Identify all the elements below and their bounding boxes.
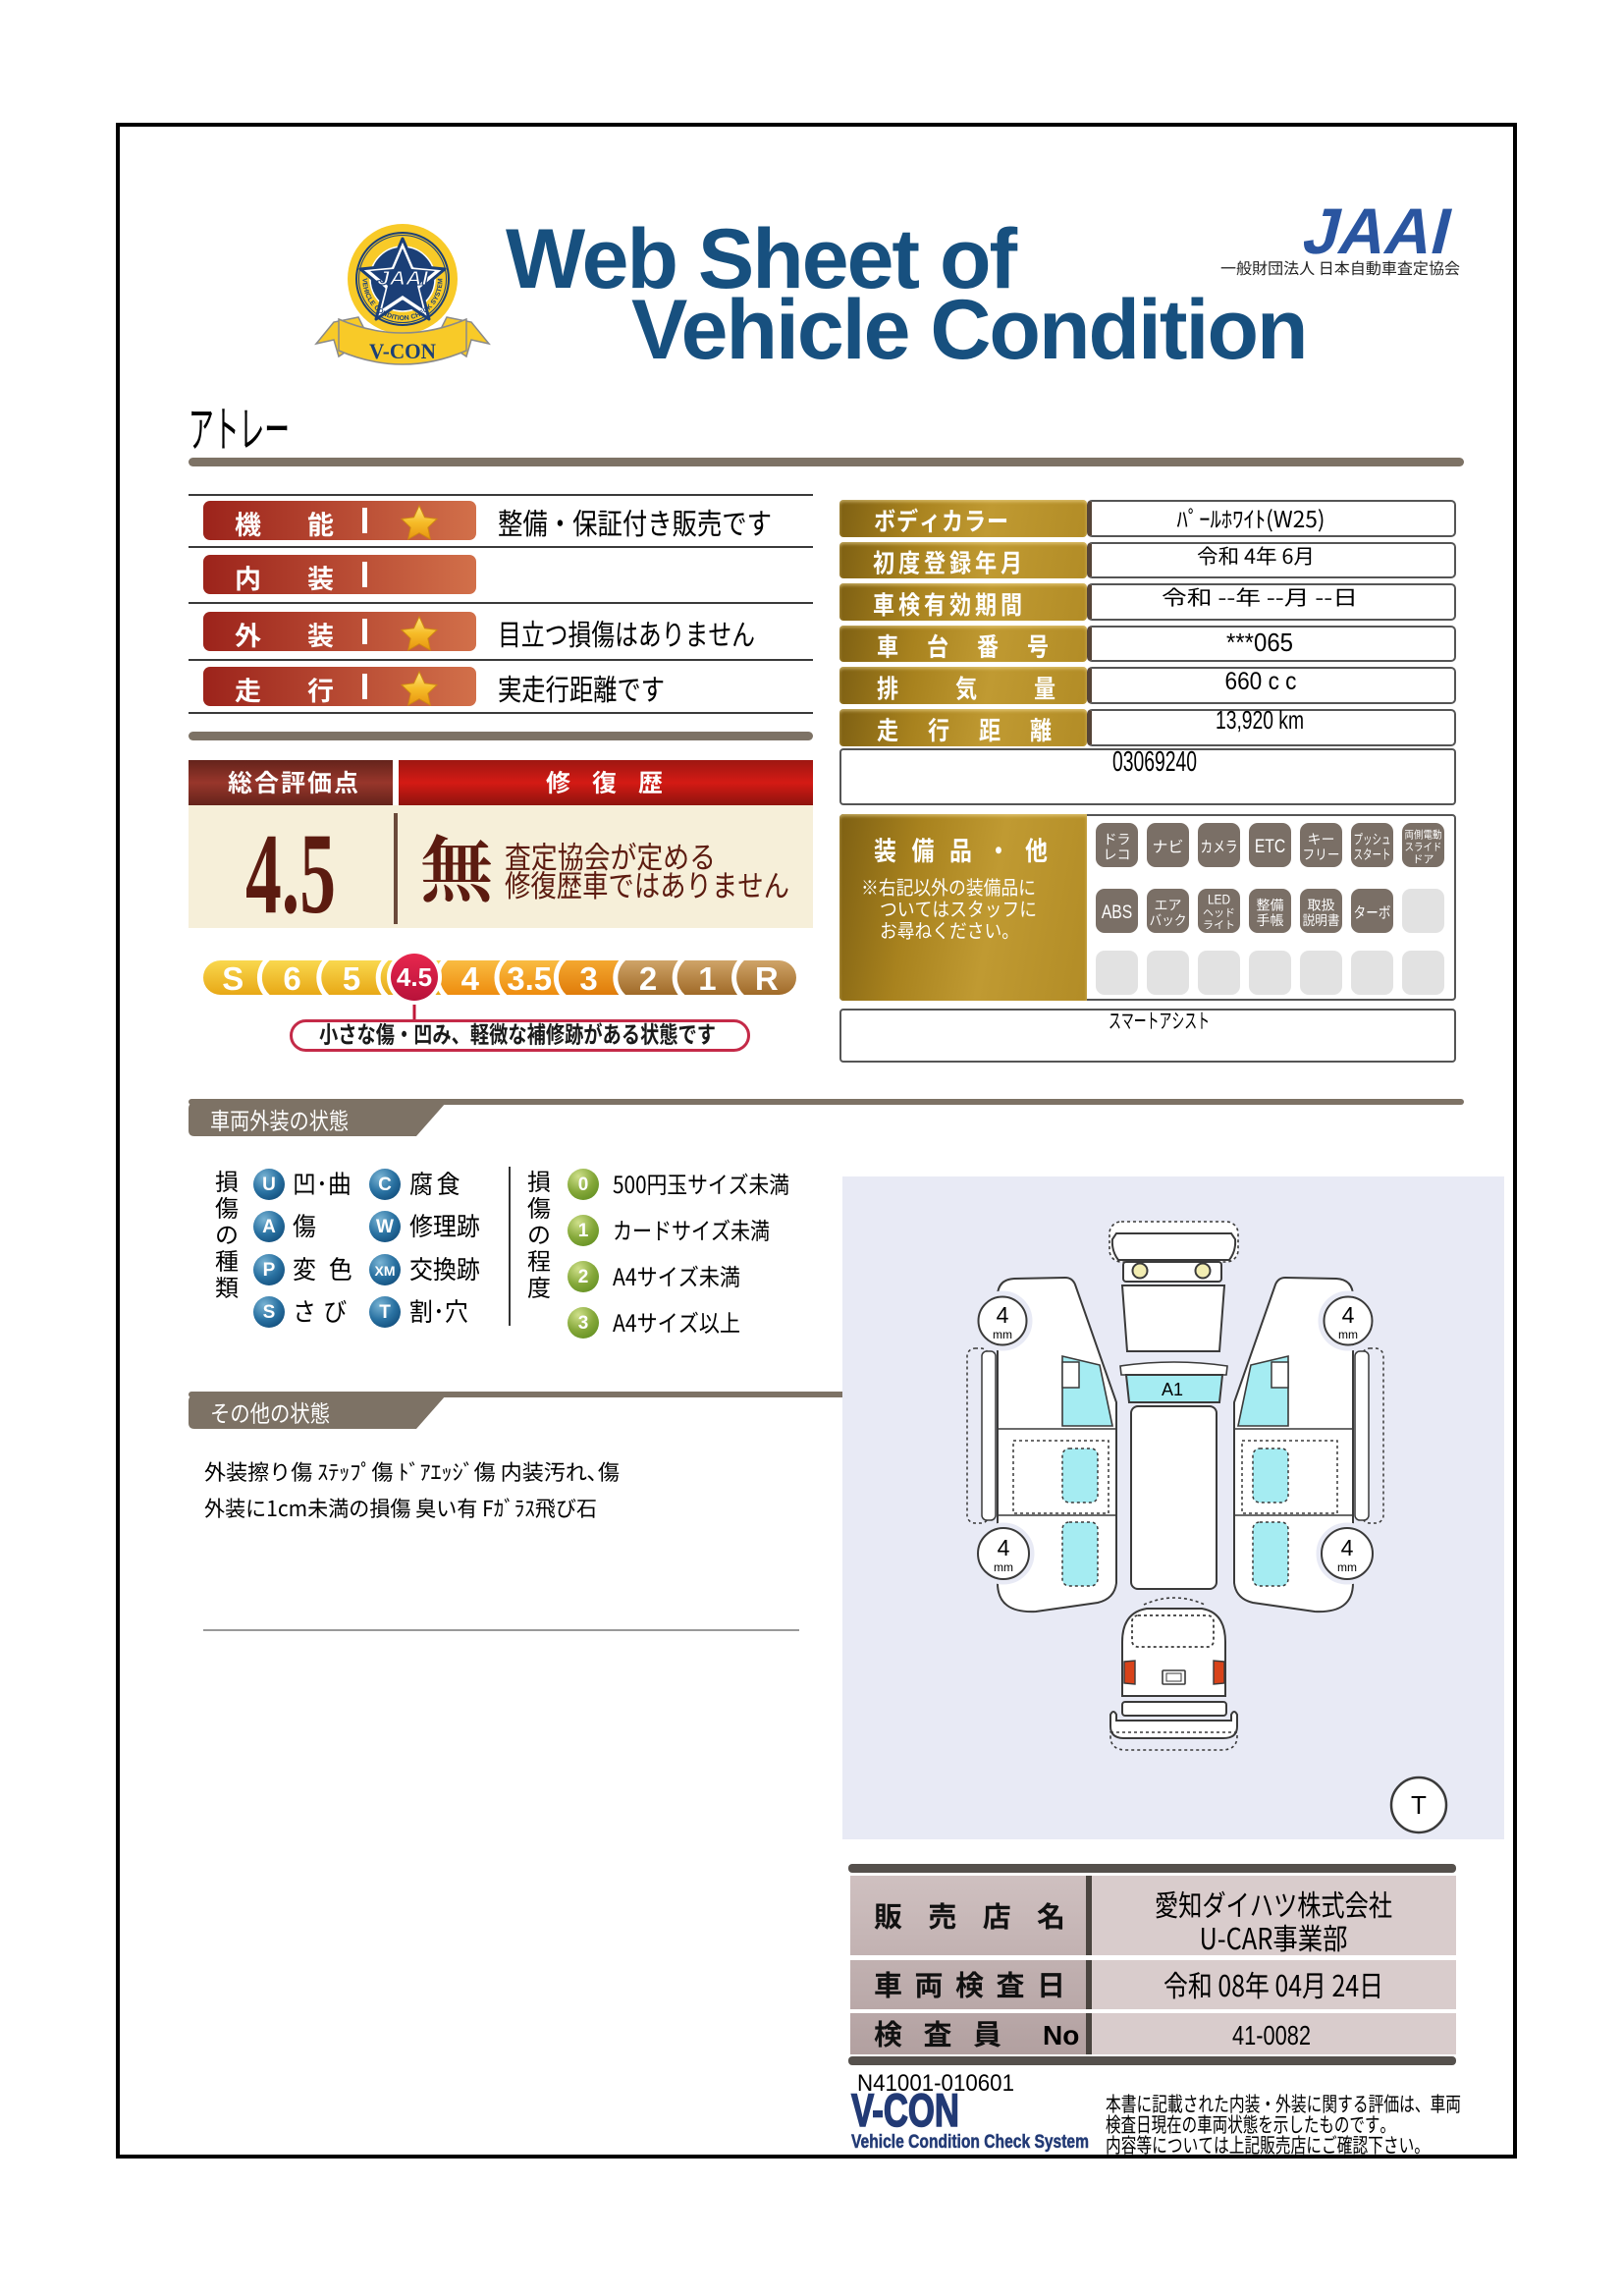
svg-text:S: S [263, 1302, 276, 1323]
svg-text:C: C [378, 1175, 392, 1195]
svg-text:5: 5 [343, 960, 360, 997]
svg-text:4: 4 [461, 960, 480, 997]
svg-text:0: 0 [578, 1175, 589, 1195]
svg-text:3: 3 [579, 960, 597, 997]
svg-text:3: 3 [578, 1313, 589, 1334]
svg-text:A1: A1 [1162, 1380, 1183, 1399]
svg-text:XM: XM [375, 1263, 396, 1279]
svg-text:W: W [376, 1217, 394, 1237]
svg-text:4: 4 [998, 1535, 1010, 1560]
svg-text:mm: mm [1338, 1328, 1358, 1341]
svg-text:4: 4 [1341, 1535, 1354, 1560]
svg-text:4.5: 4.5 [397, 962, 432, 992]
svg-text:2: 2 [578, 1267, 589, 1287]
svg-text:A: A [262, 1217, 276, 1237]
svg-text:T: T [1411, 1790, 1427, 1820]
svg-text:mm: mm [994, 1560, 1013, 1574]
svg-text:JAAI: JAAI [1298, 202, 1460, 259]
svg-text:2: 2 [639, 960, 657, 997]
svg-text:1: 1 [698, 960, 716, 997]
svg-text:4: 4 [997, 1302, 1009, 1328]
svg-text:3.5: 3.5 [507, 960, 552, 997]
svg-text:1: 1 [578, 1221, 589, 1241]
svg-text:U: U [262, 1175, 276, 1195]
svg-text:JAAI: JAAI [377, 268, 428, 290]
svg-text:P: P [263, 1260, 276, 1281]
svg-text:mm: mm [1337, 1560, 1357, 1574]
svg-text:V-CON: V-CON [369, 339, 436, 363]
svg-text:R: R [755, 960, 779, 997]
svg-text:4: 4 [1342, 1302, 1355, 1328]
svg-text:6: 6 [283, 960, 300, 997]
svg-text:T: T [379, 1302, 391, 1323]
svg-text:mm: mm [993, 1328, 1012, 1341]
svg-text:S: S [222, 960, 243, 997]
